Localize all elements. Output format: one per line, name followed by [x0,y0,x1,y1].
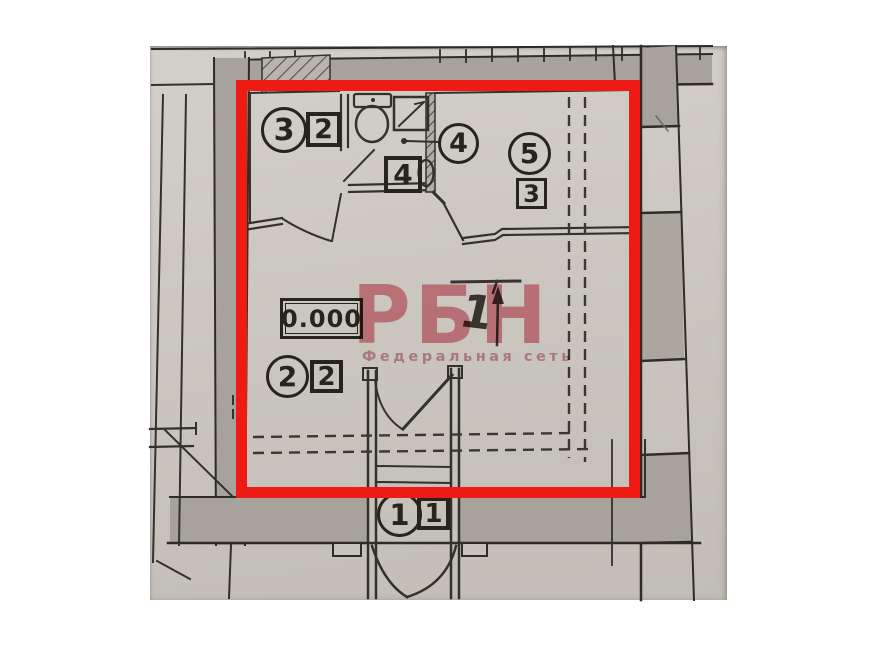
room-circle-label-1: 1 [377,492,422,537]
room-square-label-1: 1 [417,497,450,530]
highlight-rectangle [236,80,640,498]
room-square-text: 1 [424,499,442,529]
room-circle-text: 1 [389,498,409,532]
